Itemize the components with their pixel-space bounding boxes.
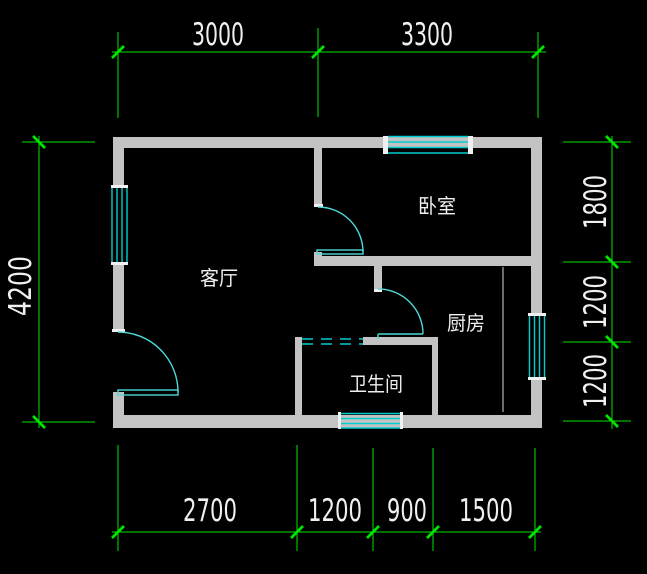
room-label-living-room: 客厅 [200,266,238,290]
cad-drawing-canvas[interactable]: 3000 3300 4200 1800 1200 1200 2700 1200 … [0,0,647,574]
cap [338,412,341,429]
dim-line-top [112,28,546,118]
cap [400,412,403,429]
dim-top-2: 3300 [401,17,453,53]
wall-bathroom-right [432,337,438,415]
dim-top-1: 3000 [192,17,244,53]
bathroom-door-dashed [302,339,363,344]
room-label-bedroom: 卧室 [418,194,456,218]
dimension-labels: 3000 3300 4200 1800 1200 1200 2700 1200 … [3,17,614,529]
wall-bottom [113,415,542,428]
dim-bottom-1: 2700 [183,493,237,529]
cap [383,136,388,154]
wall-right-lower [531,380,542,428]
doors [118,207,423,395]
cap [528,313,546,316]
wall-left-upper [113,137,124,185]
room-label-kitchen: 厨房 [447,311,485,335]
wall-left-lower [113,392,124,428]
dim-right-2: 1200 [578,275,614,329]
cap [468,136,473,154]
room-labels: 客厅 卧室 厨房 卫生间 [200,194,485,396]
dim-left-1: 4200 [3,256,39,316]
wall-divider-vertical-upper [314,148,322,205]
wall-bathroom-left [295,337,302,415]
wall-kitchen-door-stub [374,266,382,292]
entrance-door [118,332,178,395]
wall-top [113,137,542,148]
dim-right-1: 1800 [578,175,614,229]
wall-divider-horizontal [314,256,531,266]
cap [528,377,546,380]
cap [111,262,128,265]
wall-right-upper [531,137,542,313]
dim-bottom-2: 1200 [308,493,362,529]
floor-plan: 3000 3300 4200 1800 1200 1200 2700 1200 … [0,0,647,574]
dim-right-3: 1200 [578,354,614,408]
wall-end-caps [111,136,546,429]
wall-left-middle [113,265,124,332]
cap [111,185,128,188]
kitchen-door [378,289,423,339]
bedroom-door [317,207,363,254]
wall-bathroom-top [363,337,438,345]
dim-bottom-4: 1500 [459,493,513,529]
window-right-kitchen [530,316,545,377]
window-left-living-room [112,188,127,262]
dim-bottom-3: 900 [387,493,427,529]
room-label-bathroom: 卫生间 [349,372,403,396]
